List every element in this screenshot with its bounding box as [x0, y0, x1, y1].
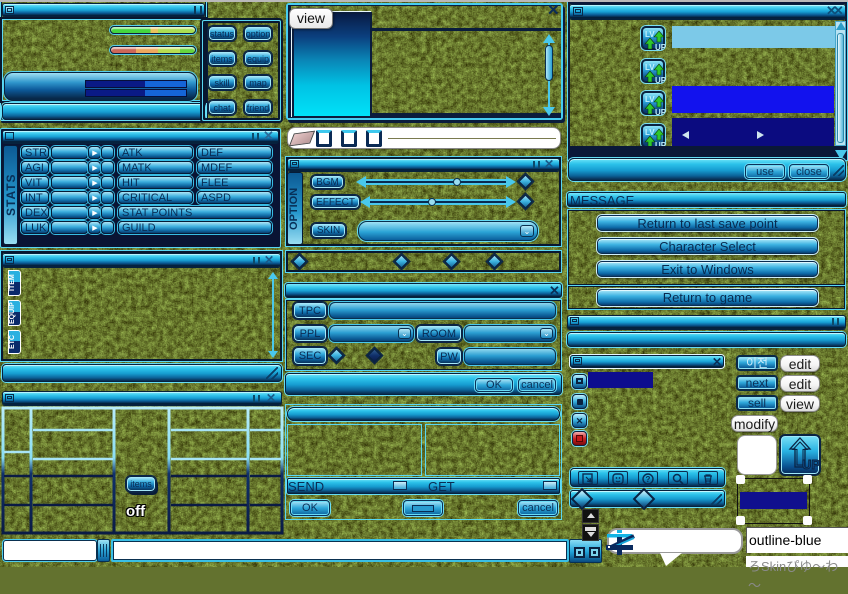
svg-text:UP: UP: [655, 108, 667, 117]
svg-text:LV: LV: [645, 95, 655, 104]
svg-text:UP: UP: [802, 457, 819, 472]
svg-text:?: ?: [646, 475, 651, 484]
svg-text:LV: LV: [645, 30, 655, 39]
svg-text:LV: LV: [645, 63, 655, 72]
svg-text:LV: LV: [645, 128, 655, 137]
svg-text:UP: UP: [655, 43, 667, 52]
svg-text:UP: UP: [655, 76, 667, 85]
